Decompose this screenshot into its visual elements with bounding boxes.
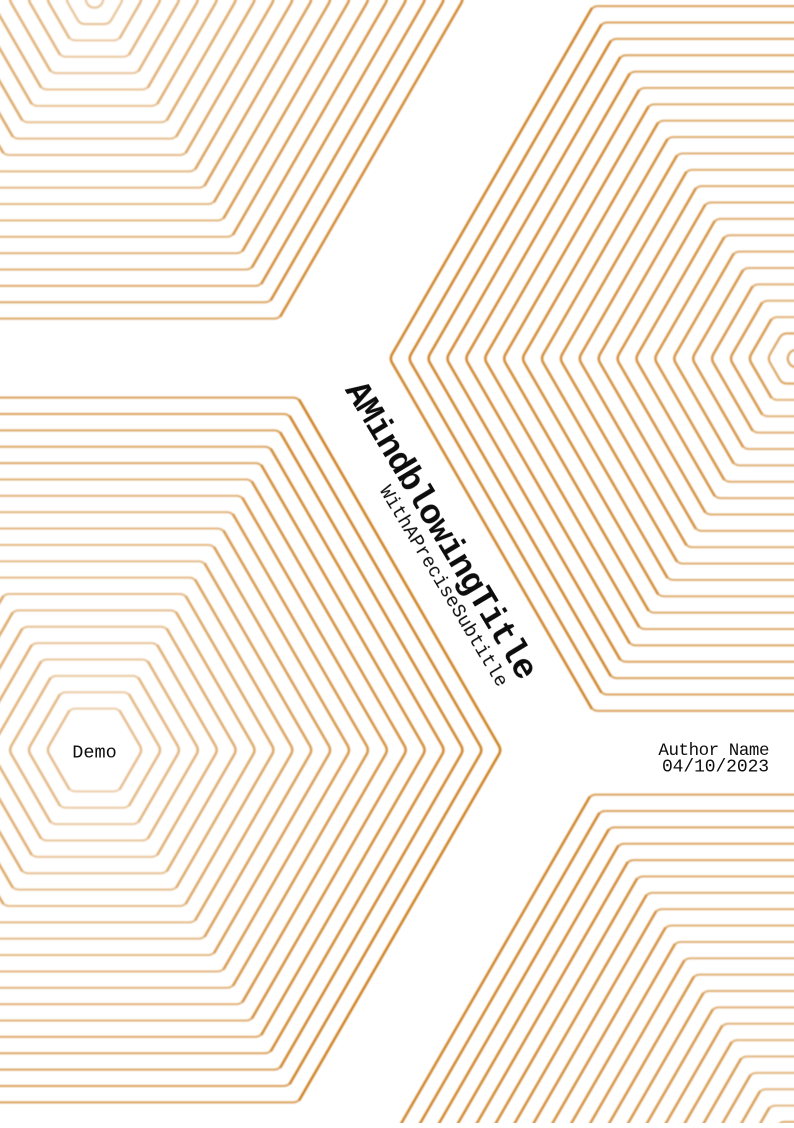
svg-text:Demo: Demo bbox=[72, 742, 116, 763]
svg-text:04/10/2023: 04/10/2023 bbox=[662, 758, 769, 778]
